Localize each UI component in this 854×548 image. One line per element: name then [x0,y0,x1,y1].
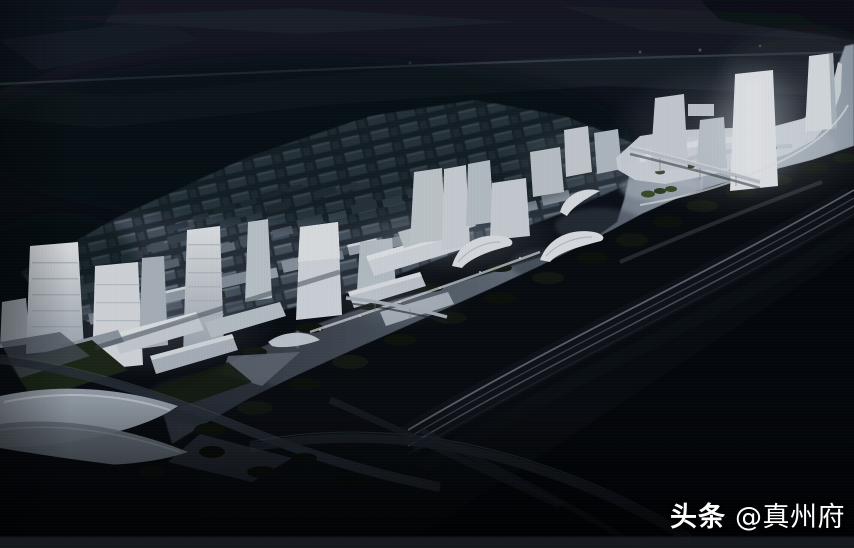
vignette [0,0,854,548]
watermark-handle: @真州府 [735,503,845,533]
screenshot-night-aerial-rendering: 头条 @真州府 [0,0,854,548]
scene-svg [0,0,854,548]
watermark: 头条 @真州府 [670,503,845,533]
watermark-brand: 头条 [670,503,726,533]
bottom-edge-strip [0,537,854,548]
